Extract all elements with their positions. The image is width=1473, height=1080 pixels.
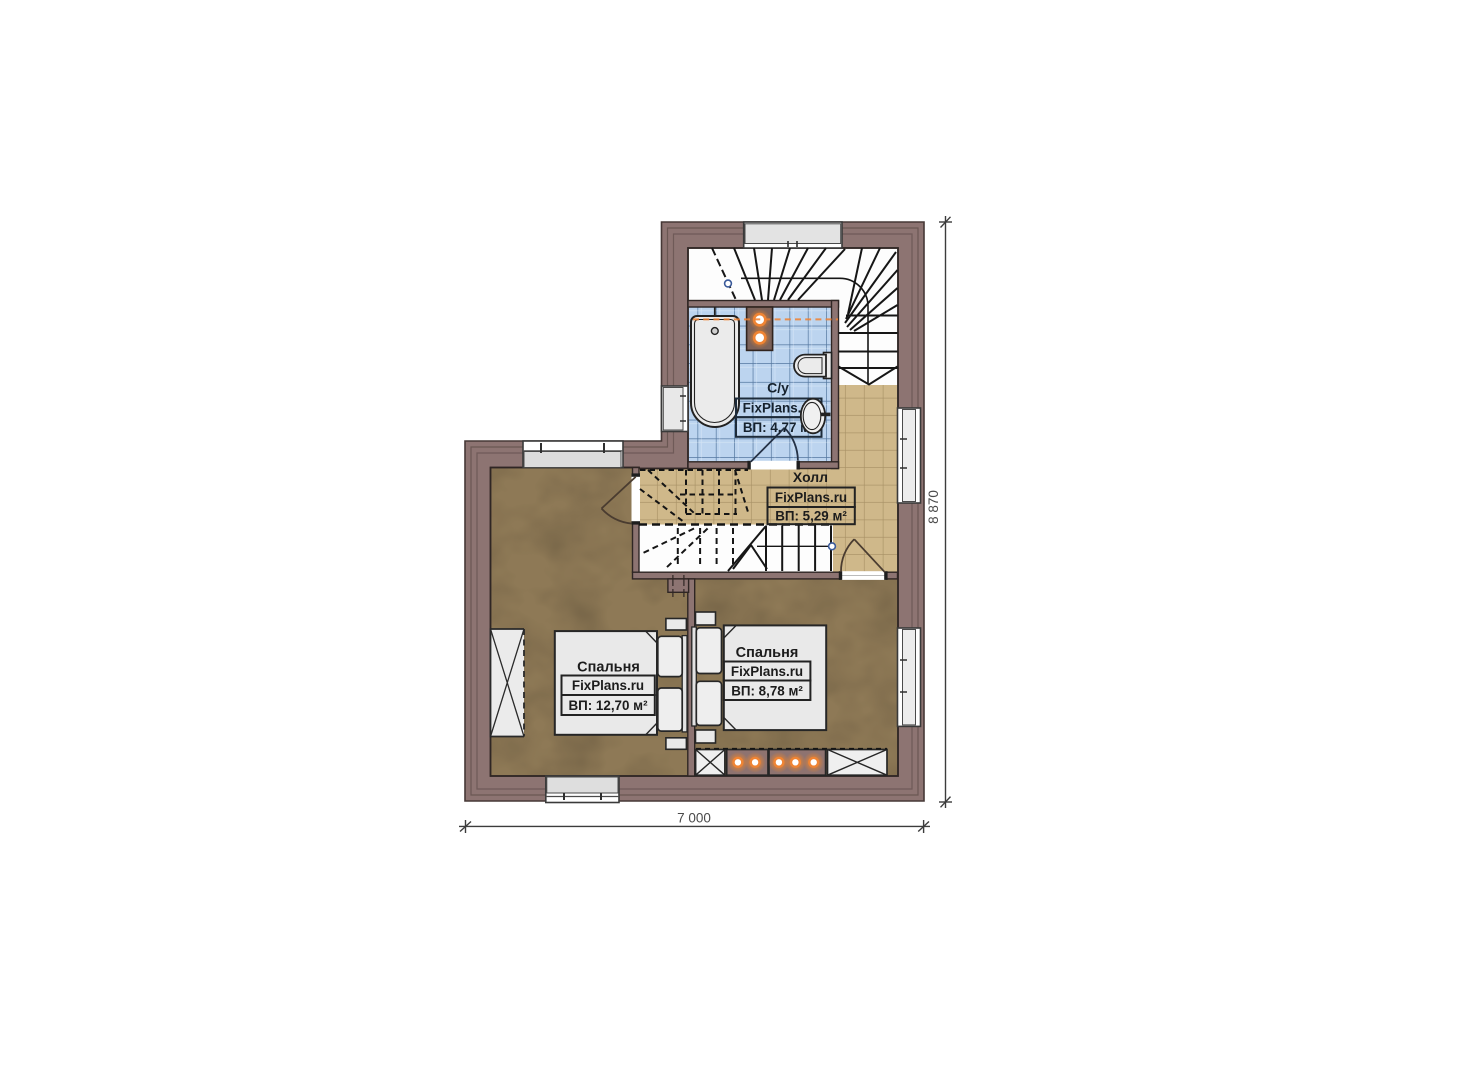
svg-text:ВП: 5,29 м²: ВП: 5,29 м² xyxy=(775,509,847,524)
svg-text:FixPlans.ru: FixPlans.ru xyxy=(572,678,644,693)
svg-text:Спальня: Спальня xyxy=(577,660,640,676)
svg-text:С/у: С/у xyxy=(767,380,789,396)
svg-text:8 870: 8 870 xyxy=(926,490,941,524)
svg-text:FixPlans.ru: FixPlans.ru xyxy=(775,490,847,505)
svg-text:ВП: 12,70 м²: ВП: 12,70 м² xyxy=(568,698,648,713)
svg-text:FixPlans.ru: FixPlans.ru xyxy=(731,664,803,679)
svg-text:Спальня: Спальня xyxy=(736,645,799,661)
svg-text:ВП: 8,78 м²: ВП: 8,78 м² xyxy=(731,684,803,699)
svg-text:Холл: Холл xyxy=(793,469,828,485)
svg-text:7 000: 7 000 xyxy=(677,811,711,826)
